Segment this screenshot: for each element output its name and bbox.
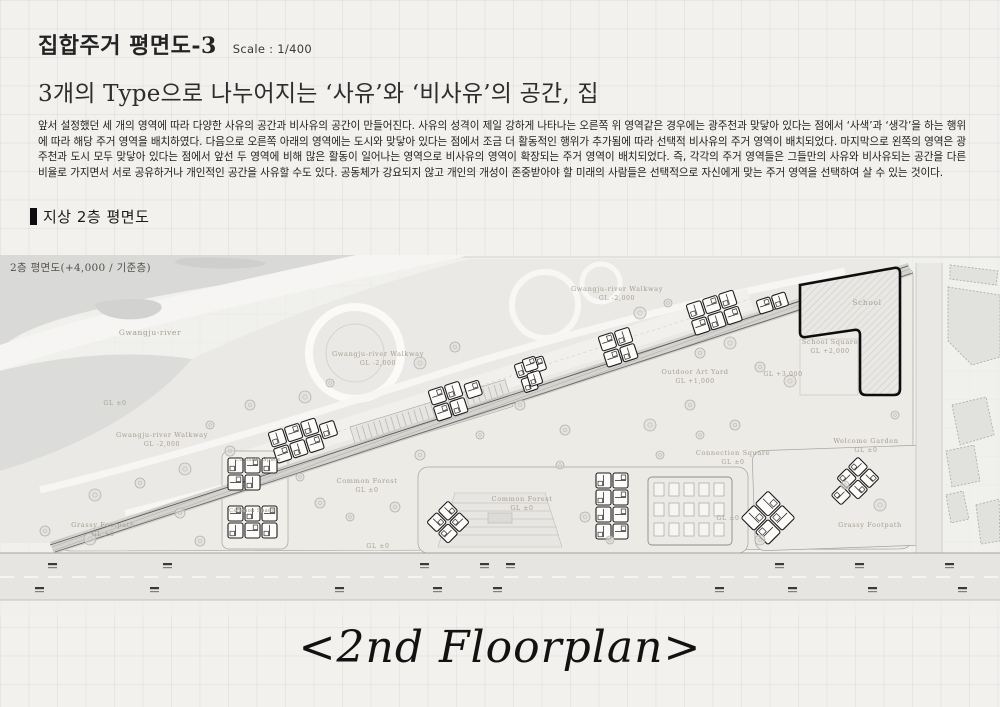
section-title: 지상 2층 평면도 — [43, 206, 149, 227]
courtyard-block — [648, 477, 732, 545]
ground-level-marker-3: GL ±0 — [103, 400, 126, 407]
connection-square-label: Connection Square — [696, 449, 770, 457]
page-title: 집합주거 평면도-3 — [38, 28, 217, 60]
common-forest-level-2: GL ±0 — [510, 505, 533, 512]
common-space-label-1: Common Space — [235, 457, 281, 463]
header: 집합주거 평면도-3 Scale : 1/400 — [38, 28, 312, 60]
floorplan-caption: <2nd Floorplan> — [0, 622, 1000, 673]
common-forest-label-1: Common Forest — [337, 477, 398, 485]
site-plan-svg: 2층 평면도(+4,000 / 기준층) Gwangju-river Gwang… — [0, 255, 1000, 615]
description-paragraph: 앞서 설정했던 세 개의 영역에 따라 다양한 사유의 공간과 비사유의 공간이… — [38, 119, 966, 181]
school-square-label: School Square — [802, 338, 858, 346]
scale-note: Scale : 1/400 — [233, 42, 312, 56]
walkway-level-2: GL -2,000 — [599, 295, 635, 302]
site-plan-drawing: 2층 평면도(+4,000 / 기준층) Gwangju-river Gwang… — [0, 255, 1000, 615]
river-label: Gwangju-river — [119, 328, 181, 337]
walkway-label-3: Gwangju-river Walkway — [116, 431, 208, 439]
plan-title: 2층 평면도(+4,000 / 기준층) — [10, 262, 151, 274]
school-building — [800, 268, 900, 395]
outdoor-art-yard-level: GL +1,000 — [675, 378, 714, 385]
grassy-footpath-level-1: GL ±0 — [91, 531, 114, 538]
presentation-board: 집합주거 평면도-3 Scale : 1/400 3개의 Type으로 나누어지… — [0, 0, 1000, 707]
walkway-level-1: GL -2,000 — [360, 360, 396, 367]
outdoor-art-yard-label: Outdoor Art Yard — [661, 368, 728, 376]
grassy-footpath-label-2: Grassy Footpath — [838, 521, 902, 529]
walkway-level-3: GL -2,000 — [144, 441, 180, 448]
welcome-garden-level: GL ±0 — [854, 447, 877, 454]
walkway-label-1: Gwangju-river Walkway — [332, 350, 424, 358]
school-square-level: GL +2,000 — [810, 348, 849, 355]
ground-level-marker-1: GL ±0 — [366, 543, 389, 550]
section-header: 지상 2층 평면도 — [30, 206, 149, 227]
welcome-garden-label: Welcome Garden — [833, 437, 898, 445]
school-label: School — [852, 298, 881, 307]
common-forest-label-2: Common Forest — [492, 495, 553, 503]
grassy-footpath-label-1: Grassy Footpath — [71, 521, 135, 529]
south-road — [0, 553, 1000, 600]
section-marker-bar — [30, 208, 37, 225]
common-forest-level-1: GL ±0 — [355, 487, 378, 494]
common-space-label-2: Common Space — [229, 508, 275, 514]
east-road — [916, 263, 942, 600]
ground-level-marker-2: GL ±0 — [716, 515, 739, 522]
connection-square-level: GL ±0 — [721, 459, 744, 466]
walkway-label-2: Gwangju-river Walkway — [571, 285, 663, 293]
page-subtitle: 3개의 Type으로 나누어지는 ‘사유’와 ‘비사유’의 공간, 집 — [38, 74, 599, 108]
school-plaza-level: GL +3,000 — [763, 371, 802, 378]
